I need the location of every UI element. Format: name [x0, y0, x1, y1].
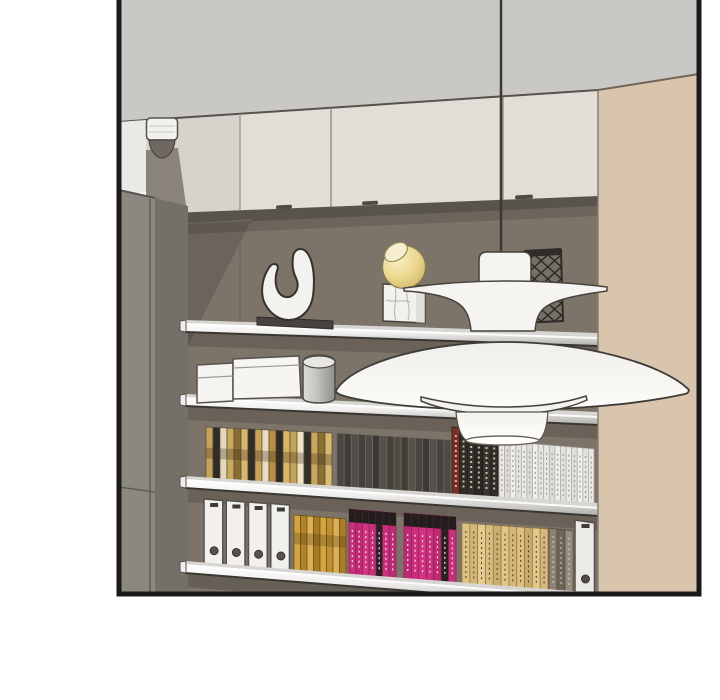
shelf4-books-tan — [462, 523, 548, 592]
book-spine-cap — [362, 510, 369, 524]
cabinet-side-strip — [119, 120, 146, 196]
book-spine — [344, 433, 351, 490]
page-background — [0, 0, 720, 700]
book-spine-cap — [426, 515, 433, 529]
binder-hole — [210, 547, 218, 555]
book-spine — [394, 437, 401, 494]
shelf4-books-gold — [294, 515, 346, 577]
binder — [575, 520, 595, 595]
book-spine-cap — [349, 509, 356, 523]
book-spine — [337, 433, 344, 490]
shelf-end-cap — [180, 394, 186, 406]
book-spine-cap — [369, 511, 376, 525]
book-spine — [423, 438, 430, 495]
book-spine — [444, 440, 451, 497]
shelf4-books-taupe — [549, 528, 573, 594]
shelf-end-cap — [180, 561, 186, 573]
beige-wardrobe-panel — [598, 74, 699, 596]
left-door-panel — [119, 190, 188, 596]
book-spine-cap — [389, 512, 396, 526]
book-spine-cap — [441, 516, 448, 530]
binder-hole — [232, 549, 240, 557]
book-spine — [401, 437, 408, 494]
binder-slot — [232, 505, 240, 509]
box-left — [197, 363, 233, 403]
book-spine-cap — [449, 516, 456, 530]
book-spine — [351, 434, 358, 491]
shelf4-books-magenta-left — [349, 509, 396, 581]
detector-body — [147, 118, 178, 140]
canister-lid — [303, 356, 335, 368]
cabinet-handle — [362, 201, 378, 206]
book-spine — [373, 435, 380, 492]
book-spine-cap — [356, 510, 363, 524]
cylinder-canister — [303, 355, 335, 403]
binder — [204, 499, 223, 567]
shelf4-white-binder-right — [575, 520, 595, 595]
binder-slot — [277, 508, 285, 512]
book-spine — [366, 435, 373, 492]
book-spine-cap — [383, 512, 390, 526]
shelf4-books-magenta-right — [404, 513, 456, 585]
comic-panel-scene — [0, 0, 720, 700]
book-spine-cap — [434, 515, 441, 529]
book-spine — [387, 436, 394, 493]
binder — [249, 502, 268, 570]
binder-slot — [210, 503, 218, 507]
binder-hole — [582, 575, 590, 583]
binder-slot — [255, 506, 263, 510]
lamp-diffuser-ring — [466, 436, 539, 445]
book-spine-cap — [419, 514, 426, 528]
binder — [271, 504, 290, 573]
book-spine-cap — [411, 514, 418, 528]
shelf3-books-white — [499, 441, 594, 507]
binder-slot — [582, 524, 590, 528]
book-spine — [437, 439, 444, 496]
book-spine — [415, 438, 422, 495]
book-spine — [380, 436, 387, 493]
book-spine-cap — [376, 511, 383, 525]
box-right — [233, 356, 301, 399]
binder — [226, 501, 245, 569]
shelf-end-cap — [180, 476, 186, 488]
book-spine — [358, 434, 365, 491]
book-spine — [408, 437, 415, 494]
binder-hole — [277, 552, 285, 560]
book-spine-cap — [404, 513, 411, 527]
wardrobe-face — [598, 74, 699, 596]
shelf-end-cap — [180, 320, 186, 332]
binder-hole — [255, 550, 263, 558]
book-spine — [430, 439, 437, 496]
